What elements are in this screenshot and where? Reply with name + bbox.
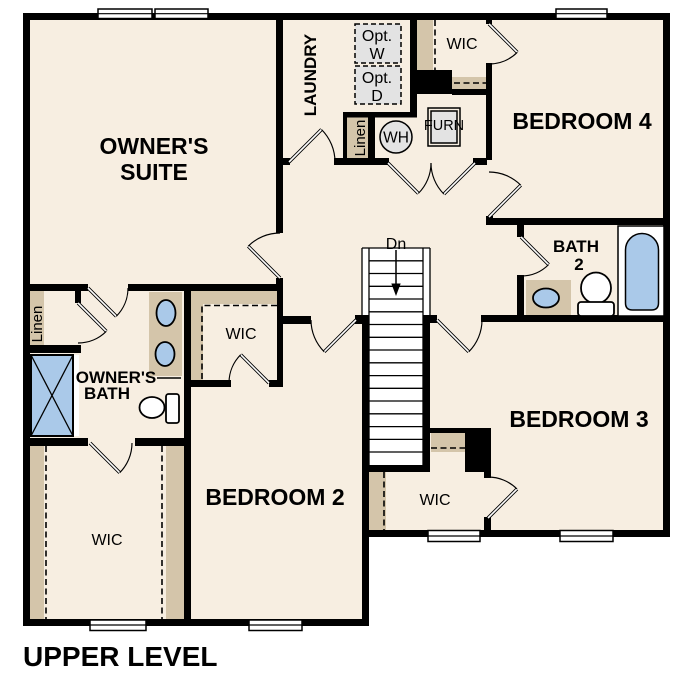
svg-text:Opt.: Opt. [362, 70, 392, 87]
svg-text:WIC: WIC [446, 36, 477, 53]
svg-text:WIC: WIC [419, 492, 450, 509]
svg-text:BATH: BATH [553, 237, 599, 256]
svg-text:UPPER LEVEL: UPPER LEVEL [23, 641, 217, 672]
svg-text:2: 2 [574, 255, 583, 274]
svg-text:LAUNDRY: LAUNDRY [301, 33, 320, 116]
svg-text:BATH: BATH [84, 384, 130, 403]
svg-text:Opt.: Opt. [362, 28, 392, 45]
svg-text:W: W [369, 46, 385, 63]
svg-text:BEDROOM 3: BEDROOM 3 [509, 406, 648, 432]
svg-text:D: D [371, 88, 383, 105]
svg-text:WH: WH [383, 130, 409, 147]
svg-text:BEDROOM 2: BEDROOM 2 [205, 484, 344, 510]
svg-text:Dn: Dn [386, 236, 406, 253]
svg-text:WIC: WIC [225, 326, 256, 343]
svg-text:SUITE: SUITE [120, 159, 188, 185]
svg-text:FURN: FURN [424, 118, 464, 134]
svg-text:BEDROOM 4: BEDROOM 4 [512, 108, 652, 134]
svg-text:OWNER'S: OWNER'S [100, 133, 209, 159]
svg-text:Linen: Linen [29, 306, 46, 343]
svg-text:Linen: Linen [352, 120, 369, 157]
svg-text:WIC: WIC [91, 532, 122, 549]
